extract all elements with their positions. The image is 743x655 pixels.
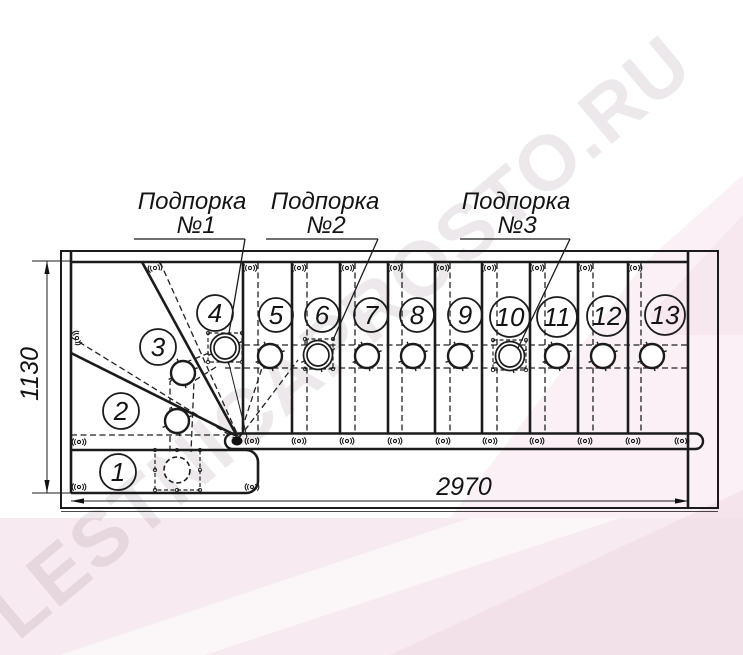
step-badge-3: 3 — [140, 329, 176, 365]
svg-text:7: 7 — [364, 300, 380, 330]
svg-text:1: 1 — [111, 457, 125, 487]
svg-text:11: 11 — [544, 302, 571, 332]
svg-text:Подпорка: Подпорка — [138, 188, 247, 215]
height-dimension-value: 1130 — [16, 347, 44, 401]
svg-text:№3: №3 — [497, 212, 537, 239]
staircase-plan-drawing: LESTNICAPROSTO.RU — [0, 0, 743, 655]
svg-text:12: 12 — [593, 301, 622, 331]
svg-text:4: 4 — [208, 298, 222, 328]
svg-text:9: 9 — [458, 300, 472, 330]
drawing-canvas: LESTNICAPROSTO.RU — [0, 0, 743, 655]
step-badge-10: 10 — [490, 297, 530, 337]
svg-text:13: 13 — [651, 300, 680, 330]
base-support-post — [164, 457, 190, 483]
svg-text:5: 5 — [269, 300, 284, 330]
svg-text:№2: №2 — [306, 212, 345, 239]
step-badge-12: 12 — [587, 296, 627, 336]
svg-text:6: 6 — [315, 300, 330, 330]
svg-text:10: 10 — [496, 302, 525, 332]
step-badge-11: 11 — [537, 297, 577, 337]
step-badge-4: 4 — [197, 295, 233, 331]
svg-text:№1: №1 — [176, 212, 215, 239]
step-badge-2: 2 — [103, 393, 139, 429]
step-badge-13: 13 — [645, 295, 685, 335]
dimension-1130: 1130 — [16, 261, 71, 493]
length-dimension-value: 2970 — [435, 473, 492, 501]
svg-text:Подпорка: Подпорка — [462, 188, 571, 215]
rail-joint-node — [232, 437, 243, 446]
support-post-1 — [208, 334, 242, 366]
svg-text:3: 3 — [151, 332, 166, 362]
step-badge-5: 5 — [259, 298, 293, 332]
step-badge-9: 9 — [448, 298, 482, 332]
svg-text:Подпорка: Подпорка — [271, 188, 380, 215]
svg-text:2: 2 — [113, 396, 129, 426]
support-label-1: Подпорка №1 — [134, 188, 246, 333]
svg-text:8: 8 — [410, 300, 425, 330]
